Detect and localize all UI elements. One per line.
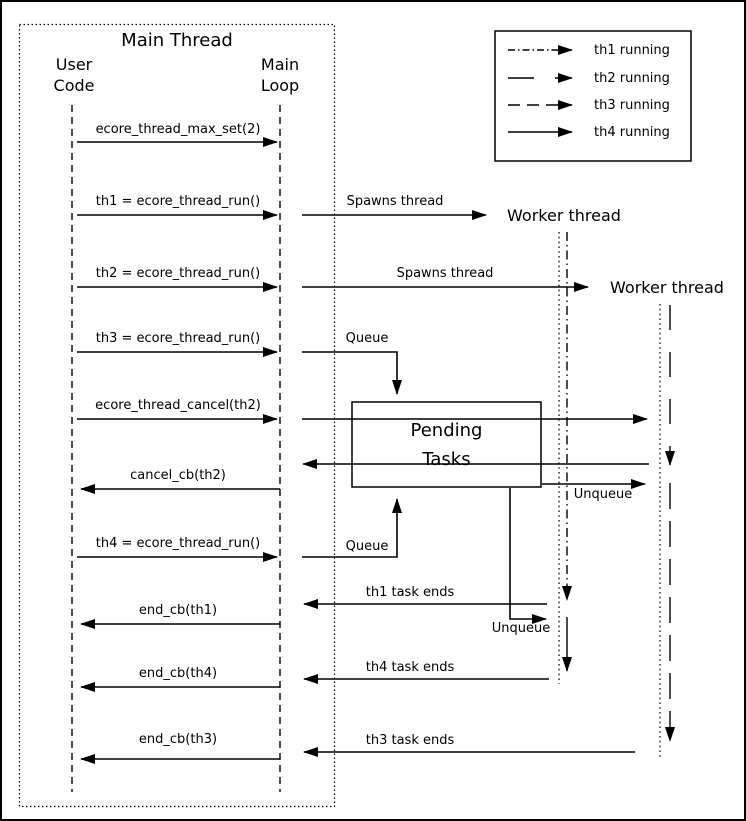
user-code-line1: User: [30, 54, 118, 75]
label-end-cb-th1: end_cb(th1): [67, 603, 289, 618]
pending-tasks-line1: Pending: [352, 416, 541, 445]
main-loop-line1: Main: [236, 54, 324, 75]
label-th3-task-ends: th3 task ends: [312, 733, 508, 748]
label-spawns-thread-2: Spawns thread: [352, 266, 538, 281]
label-end-cb-th3: end_cb(th3): [67, 732, 289, 747]
worker-thread-1-heading: Worker thread: [496, 206, 632, 225]
legend-label-th4: th4 running: [594, 125, 670, 140]
sequence-diagram: Main Thread User Code Main Loop Worker t…: [0, 0, 746, 821]
label-unqueue-2: Unqueue: [484, 621, 558, 636]
label-th3-run: th3 = ecore_thread_run(): [67, 331, 289, 346]
label-th4-run: th4 = ecore_thread_run(): [67, 536, 289, 551]
label-spawns-thread-1: Spawns thread: [302, 194, 488, 209]
legend-label-th1: th1 running: [594, 43, 670, 58]
label-cancel-cb: cancel_cb(th2): [67, 468, 289, 483]
pending-tasks-line2: Tasks: [352, 445, 541, 474]
label-th1-task-ends: th1 task ends: [312, 585, 508, 600]
legend-label-th2: th2 running: [594, 71, 670, 86]
legend-label-th3: th3 running: [594, 98, 670, 113]
label-queue-2: Queue: [340, 539, 394, 554]
label-queue-1: Queue: [340, 331, 394, 346]
label-ecore-thread-cancel: ecore_thread_cancel(th2): [67, 398, 289, 413]
main-loop-heading: Main Loop: [236, 54, 324, 96]
user-code-heading: User Code: [30, 54, 118, 96]
worker-thread-2-heading: Worker thread: [599, 278, 735, 297]
arrow-queue-1: [302, 352, 397, 394]
label-th2-run: th2 = ecore_thread_run(): [67, 266, 289, 281]
label-ecore-thread-max-set: ecore_thread_max_set(2): [67, 122, 289, 137]
label-unqueue-1: Unqueue: [565, 487, 641, 502]
pending-tasks-label: Pending Tasks: [352, 416, 541, 474]
user-code-line2: Code: [30, 75, 118, 96]
label-end-cb-th4: end_cb(th4): [67, 666, 289, 681]
main-loop-line2: Loop: [236, 75, 324, 96]
main-thread-title: Main Thread: [19, 30, 335, 51]
arrow-unqueue-2: [510, 488, 546, 619]
label-th1-run: th1 = ecore_thread_run(): [67, 194, 289, 209]
label-th4-task-ends: th4 task ends: [312, 660, 508, 675]
